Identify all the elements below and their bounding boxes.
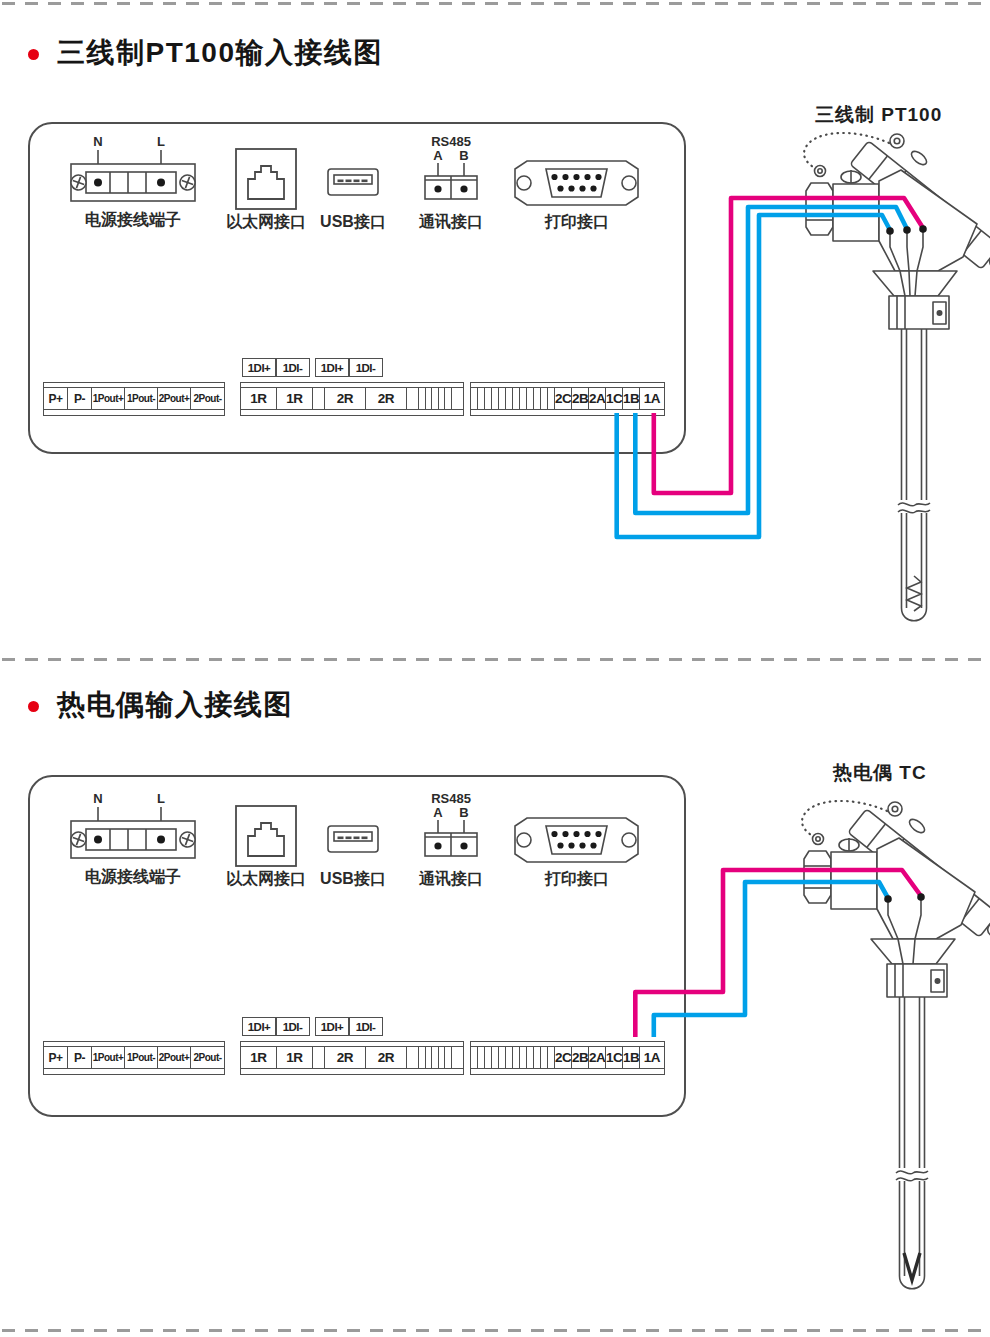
analog-input-terminal-strip: 2C 2B 2A 1C 1B 1A bbox=[470, 382, 665, 416]
power-l-label: L bbox=[157, 134, 165, 149]
terminal-cell: 2C bbox=[555, 1047, 572, 1068]
rs485-b-label: B bbox=[459, 805, 468, 820]
ethernet-port-icon bbox=[235, 148, 297, 210]
terminal-cell bbox=[313, 388, 325, 409]
terminal-cell: 1R bbox=[277, 388, 313, 409]
terminal-cell: 1R bbox=[241, 1047, 277, 1068]
terminal-cell: P- bbox=[68, 1047, 92, 1068]
wire-1a-pink bbox=[654, 198, 923, 493]
device-panel-1: N L 电源接线端子 以太网接口 USB bbox=[28, 122, 686, 454]
terminal-cell: 1A bbox=[640, 388, 664, 409]
terminal-cell: 2Pout+ bbox=[158, 1047, 191, 1068]
usb-port-icon bbox=[327, 168, 379, 196]
power-terminal-drawing: N L bbox=[70, 789, 196, 859]
terminal-cell: 2Pout+ bbox=[158, 388, 191, 409]
di-label-box: 1DI+ bbox=[315, 1017, 349, 1036]
section1-title: 三线制PT100输入接线图 bbox=[57, 34, 383, 72]
comm-label: 通讯接口 bbox=[419, 212, 483, 233]
terminal-cell: 1Pout+ bbox=[92, 1047, 125, 1068]
terminal-cell bbox=[407, 1047, 419, 1068]
comm-port-drawing: RS485 A B bbox=[423, 791, 479, 859]
terminal-cell: 1A bbox=[640, 1047, 664, 1068]
tc-junction-icon bbox=[904, 1253, 920, 1280]
usb-label: USB接口 bbox=[320, 212, 386, 233]
rs485-label: RS485 bbox=[431, 791, 471, 806]
dashed-rule-top bbox=[2, 2, 988, 5]
relay-terminal-strip: 1R 1R 2R 2R bbox=[240, 382, 464, 416]
section2-title: 热电偶输入接线图 bbox=[57, 686, 293, 724]
comm-port-drawing: RS485 A B bbox=[423, 134, 479, 202]
terminal-cell: 2A bbox=[589, 1047, 606, 1068]
di-label-box: 1DI+ bbox=[242, 1017, 276, 1036]
power-out-terminal-strip: P+ P- 1Pout+ 1Pout- 2Pout+ 2Pout- bbox=[43, 1041, 225, 1075]
rs485-a-label: A bbox=[433, 805, 443, 820]
print-port-icon bbox=[507, 158, 647, 208]
terminal-cell: 2R bbox=[325, 388, 366, 409]
power-terminal-drawing: N L bbox=[70, 132, 196, 202]
rs485-a-label: A bbox=[433, 148, 443, 163]
rs485-b-label: B bbox=[459, 148, 468, 163]
terminal-cell: 2R bbox=[366, 1047, 407, 1068]
ethernet-label: 以太网接口 bbox=[226, 212, 306, 233]
relay-terminal-strip: 1R 1R 2R 2R bbox=[240, 1041, 464, 1075]
ethernet-port-icon bbox=[235, 805, 297, 867]
terminal-cell bbox=[407, 388, 419, 409]
rtd-element-icon bbox=[907, 576, 921, 611]
print-label: 打印接口 bbox=[545, 869, 609, 890]
terminal-cell: 2B bbox=[572, 1047, 589, 1068]
terminal-cell: 1Pout+ bbox=[92, 388, 125, 409]
di-label-box: 1DI- bbox=[276, 1017, 310, 1036]
sensor1-label: 三线制 PT100 bbox=[815, 102, 942, 128]
print-label: 打印接口 bbox=[545, 212, 609, 233]
dashed-rule-bottom bbox=[2, 1329, 988, 1332]
analog-input-terminal-strip: 2C 2B 2A 1C 1B 1A bbox=[470, 1041, 665, 1075]
usb-label: USB接口 bbox=[320, 869, 386, 890]
pt100-sensor-drawing bbox=[804, 133, 990, 621]
terminal-cell: 2Pout- bbox=[191, 1047, 224, 1068]
terminal-cell: 1R bbox=[241, 388, 277, 409]
terminal-cell: 1Pout- bbox=[125, 388, 158, 409]
terminal-cell: 2C bbox=[555, 388, 572, 409]
terminal-cell: 1Pout- bbox=[125, 1047, 158, 1068]
rs485-label: RS485 bbox=[431, 134, 471, 149]
terminal-cell: P+ bbox=[44, 388, 68, 409]
comm-label: 通讯接口 bbox=[419, 869, 483, 890]
terminal-cell: 1C bbox=[606, 388, 623, 409]
power-n-label: N bbox=[93, 134, 102, 149]
terminal-cell: 1R bbox=[277, 1047, 313, 1068]
device-panel-2: N L 电源接线端子 以太网接口 USB接口 bbox=[28, 775, 686, 1117]
thermocouple-sensor-drawing bbox=[802, 801, 990, 1289]
usb-port-icon bbox=[327, 825, 379, 853]
ethernet-label: 以太网接口 bbox=[226, 869, 306, 890]
power-label: 电源接线端子 bbox=[85, 867, 181, 888]
print-port-icon bbox=[507, 815, 647, 865]
power-out-terminal-strip: P+ P- 1Pout+ 1Pout- 2Pout+ 2Pout- bbox=[43, 382, 225, 416]
terminal-cell: P+ bbox=[44, 1047, 68, 1068]
power-l-label: L bbox=[157, 791, 165, 806]
terminal-cell: 1B bbox=[623, 1047, 640, 1068]
terminal-cell: P- bbox=[68, 388, 92, 409]
terminal-cell: 2A bbox=[589, 388, 606, 409]
power-n-label: N bbox=[93, 791, 102, 806]
dashed-rule-middle bbox=[2, 658, 988, 661]
sensor2-label: 热电偶 TC bbox=[833, 760, 927, 786]
terminal-cell: 2Pout- bbox=[191, 388, 224, 409]
terminal-cell: 2R bbox=[325, 1047, 366, 1068]
bullet-icon bbox=[28, 701, 39, 712]
terminal-cell bbox=[452, 388, 464, 409]
terminal-cell: 2B bbox=[572, 388, 589, 409]
wire-1a-cyan bbox=[654, 882, 888, 1037]
terminal-cell bbox=[313, 1047, 325, 1068]
power-label: 电源接线端子 bbox=[85, 210, 181, 231]
di-label-box: 1DI+ bbox=[242, 358, 276, 377]
bullet-icon bbox=[28, 49, 39, 60]
terminal-cell: 1C bbox=[606, 1047, 623, 1068]
di-label-box: 1DI+ bbox=[315, 358, 349, 377]
di-label-box: 1DI- bbox=[276, 358, 310, 377]
terminal-cell: 2R bbox=[366, 388, 407, 409]
di-label-box: 1DI- bbox=[349, 358, 383, 377]
terminal-cell: 1B bbox=[623, 388, 640, 409]
di-label-box: 1DI- bbox=[349, 1017, 383, 1036]
